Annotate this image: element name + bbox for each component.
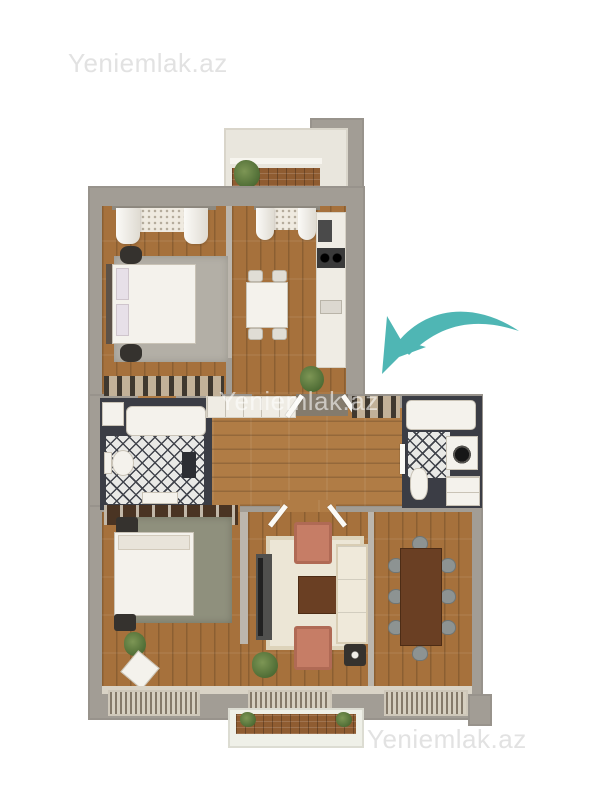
- floorplan-image: Yeniemlak.az: [0, 0, 600, 800]
- side-table: [344, 644, 366, 666]
- bedroom-top-pouf-2: [120, 344, 142, 362]
- kitchen-chair-1: [248, 270, 263, 282]
- bottom-balcony-plant-left: [240, 712, 256, 727]
- bottom-right-wall-step: [468, 694, 492, 726]
- sofa: [336, 544, 368, 644]
- dining-chair-r1: [440, 558, 456, 573]
- bathroom-right-cabinet: [446, 476, 480, 506]
- dining-chair-r2: [440, 589, 456, 604]
- kitchen-curtain-left: [256, 208, 274, 240]
- kitchen-chair-2: [272, 270, 287, 282]
- bedroom-top-pouf-1: [120, 246, 142, 264]
- tv-screen: [258, 558, 263, 636]
- bathroom-left-towel: [182, 452, 196, 478]
- watermark-center: Yeniemlak.az: [219, 386, 379, 417]
- dining-table: [400, 548, 442, 646]
- bedroom-top-curtain-right: [184, 208, 208, 244]
- window-bedroom-bottom: [108, 690, 200, 716]
- curved-arrow-icon: [370, 295, 530, 390]
- bed-top-pillow-2: [116, 304, 129, 336]
- bedroom-top-dresser: [104, 376, 224, 396]
- nightstand-2: [114, 614, 136, 631]
- kitchen-cooktop: [317, 248, 345, 268]
- bedroom-top-lace: [140, 208, 184, 232]
- balcony-plant: [234, 160, 260, 188]
- kitchen-curtain-right: [298, 208, 316, 240]
- kitchen-chair-4: [272, 328, 287, 340]
- dining-chair-r3: [440, 620, 456, 635]
- toilet-tank-left: [104, 452, 112, 474]
- kitchen-table: [246, 282, 288, 328]
- living-plant: [252, 652, 278, 678]
- bedroom-living-wall: [240, 512, 248, 644]
- window-dining: [384, 690, 468, 716]
- watermark-top-left: Yeniemlak.az: [68, 48, 228, 79]
- bathroom-left-sink: [102, 402, 124, 426]
- bathroom-right-door: [400, 444, 405, 474]
- washing-machine: [446, 436, 478, 470]
- bathtub-left: [126, 406, 206, 436]
- watermark-bottom-right: Yeniemlak.az: [367, 724, 527, 755]
- dining-chair-bottom: [412, 646, 428, 661]
- hallway-floor: [212, 408, 402, 506]
- bed-bottom-pillows: [118, 535, 190, 550]
- bathtub-right: [406, 400, 476, 430]
- toilet-right: [410, 468, 428, 500]
- kitchen-chair-3: [248, 328, 263, 340]
- living-dining-wall: [368, 512, 374, 692]
- armchair-top: [294, 522, 332, 564]
- bedroom-top-curtain-left: [116, 208, 140, 244]
- bed-top-pillow-1: [116, 268, 129, 300]
- toilet-left: [112, 450, 134, 476]
- bottom-balcony-plant-right: [336, 712, 352, 727]
- kitchen-hood: [318, 220, 332, 242]
- bathroom-left-mat: [142, 492, 178, 504]
- bedroom-living-door-gap: [240, 644, 248, 692]
- armchair-bottom: [294, 626, 332, 670]
- kitchen-sink: [320, 300, 342, 314]
- kitchen-lace: [274, 208, 298, 230]
